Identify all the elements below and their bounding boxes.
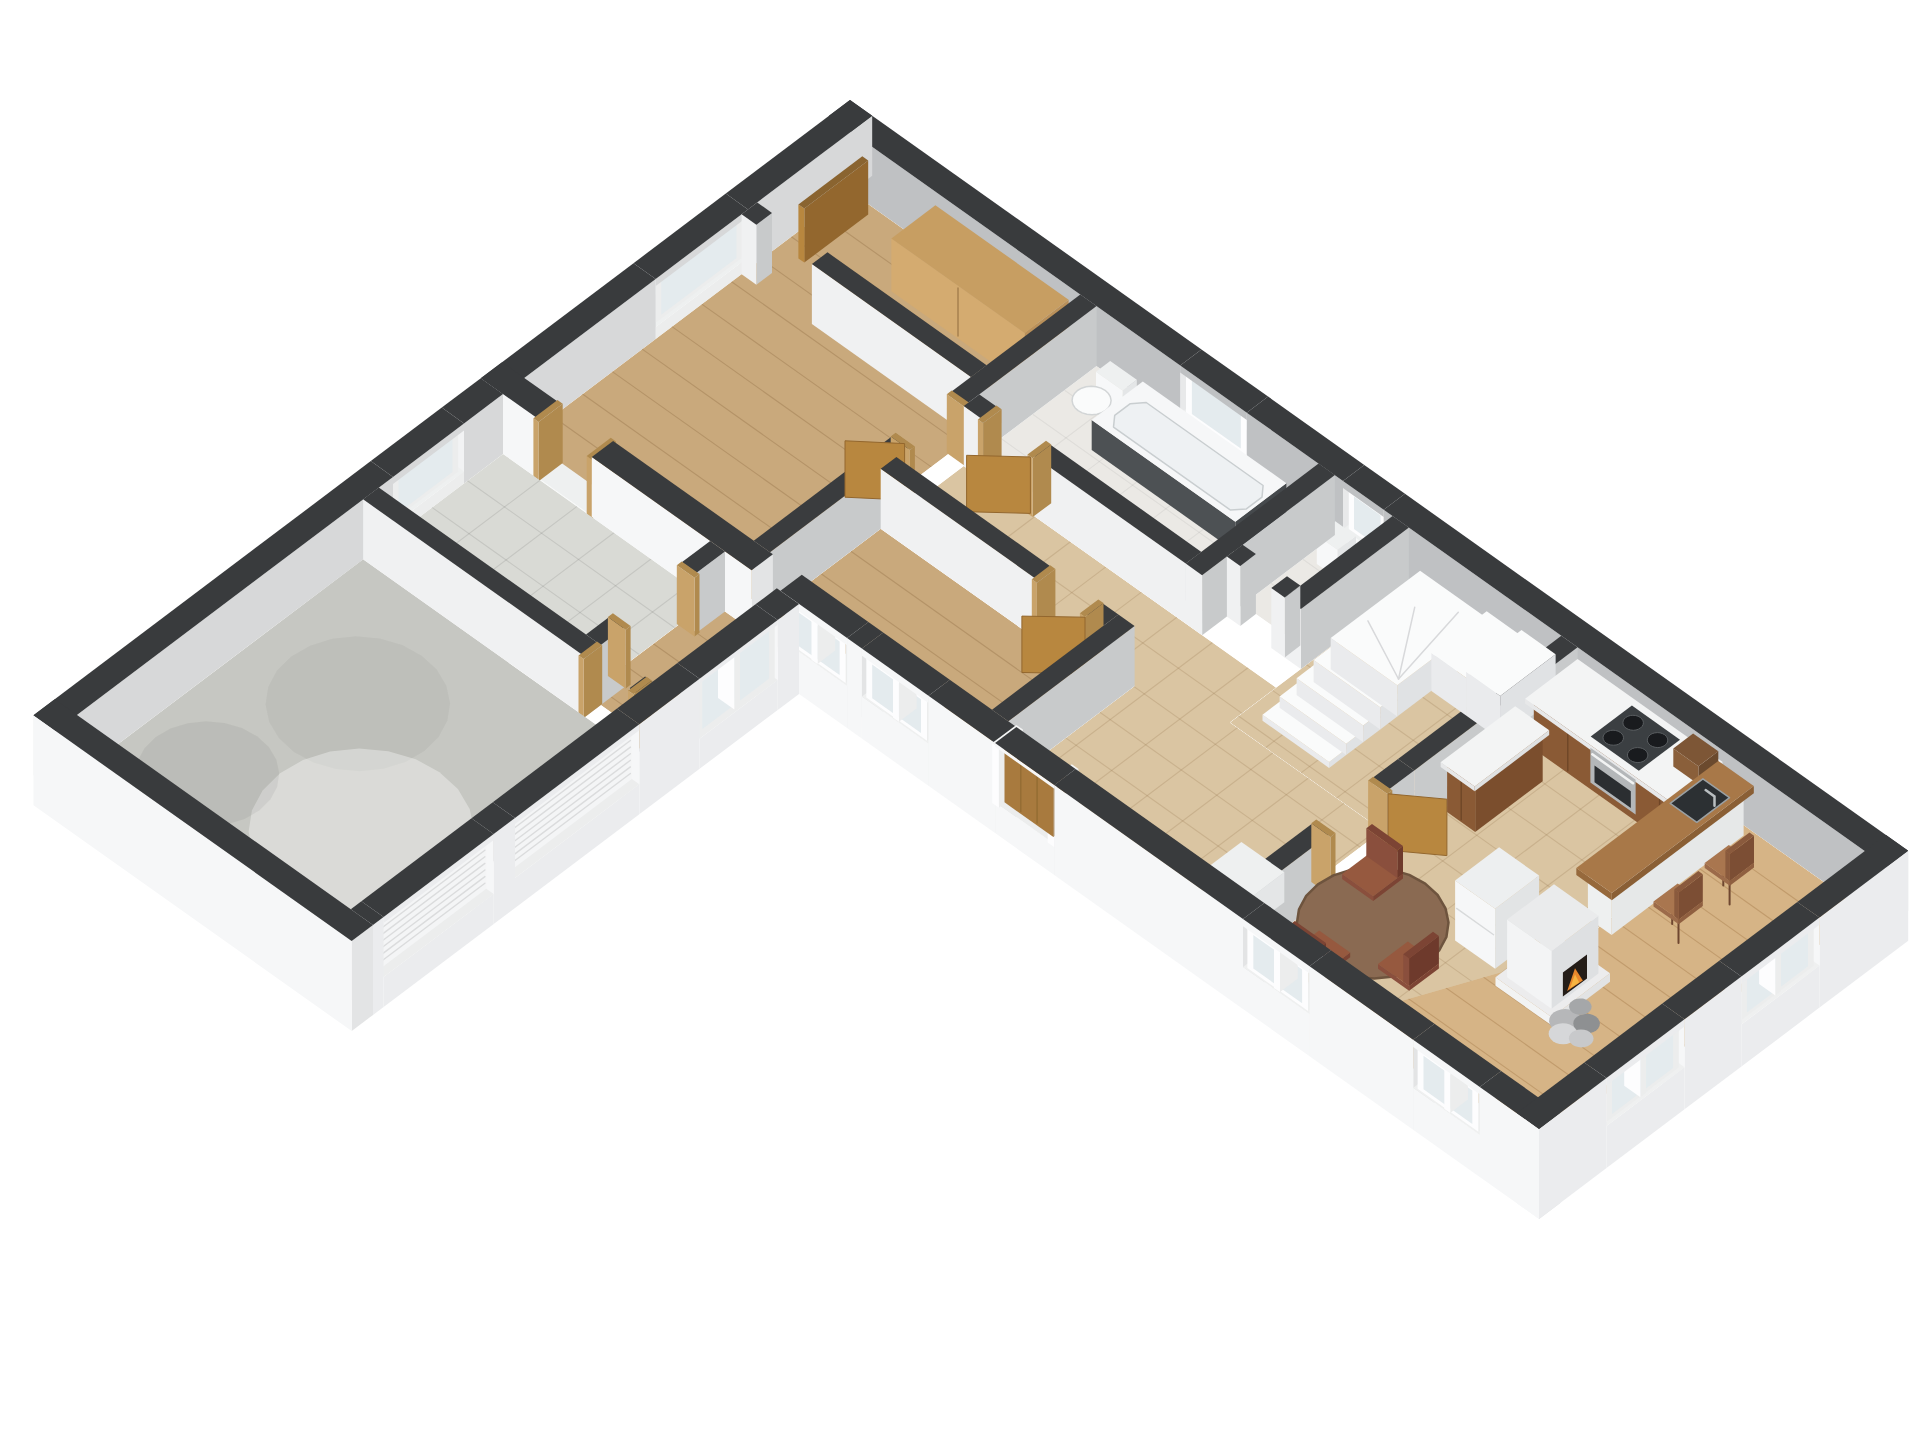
bathroom-door-frame-b [1028,441,1052,517]
vestibule-door-frame-a [677,561,700,636]
burner-2 [1647,733,1668,748]
burner-1 [1623,715,1644,730]
divider-door-frame-a [579,642,603,718]
wc-wall-south-a [1227,545,1256,626]
wc-wall-south-b [1271,576,1300,657]
burner-3 [1603,730,1624,745]
bathroom-door-open [967,455,1031,513]
burner-4 [1627,748,1648,763]
closet-divider-wall-a [742,202,772,284]
vestibule-door-frame-b [608,613,631,688]
floor-plan-stage: 3D isometric floor plan render of an L-s… [0,0,1920,1440]
floorplan-3d-render [0,0,1920,1440]
